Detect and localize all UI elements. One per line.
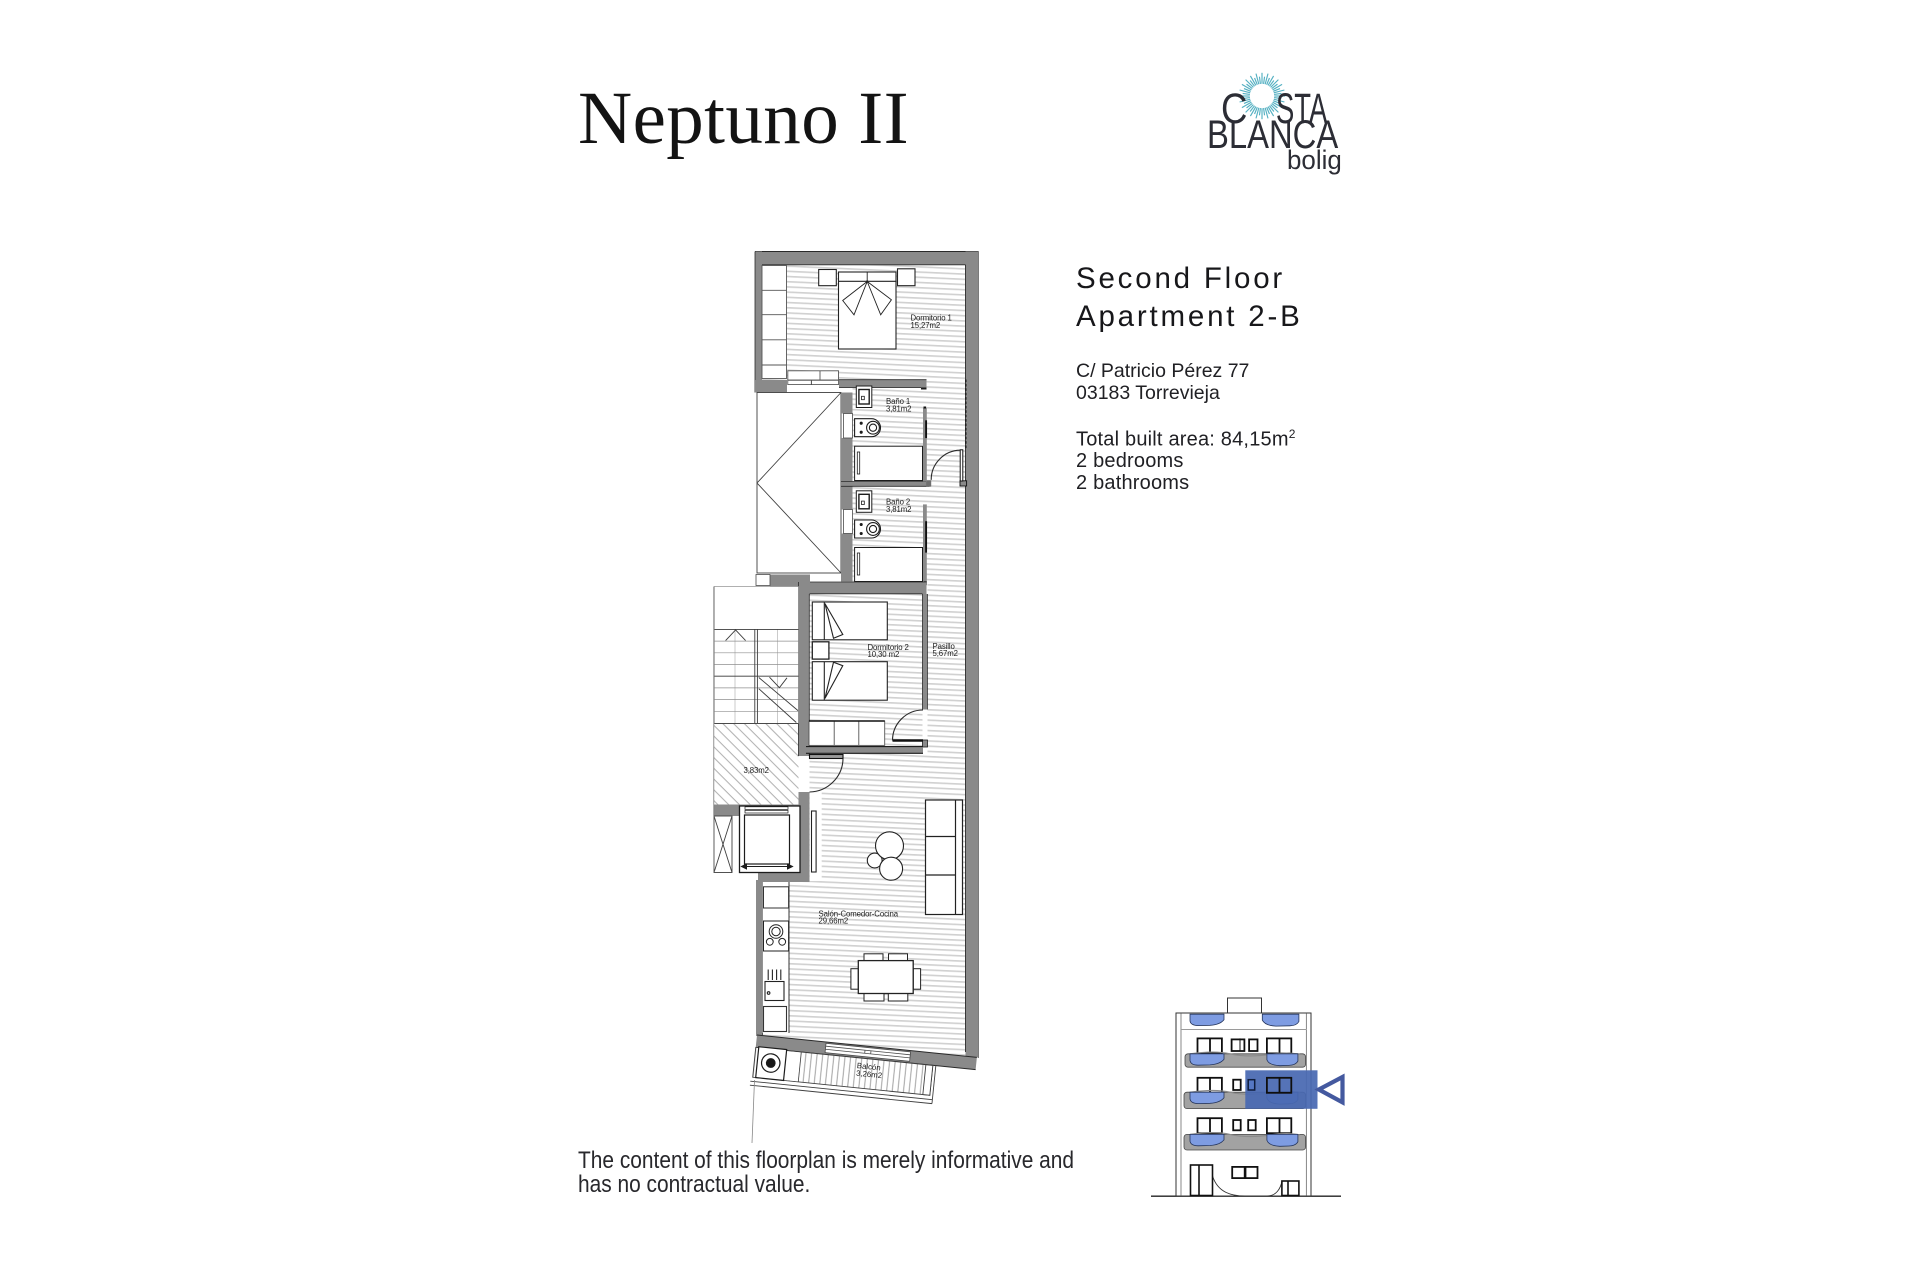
svg-text:3,81m2: 3,81m2 <box>886 405 911 414</box>
svg-text:29,66m2: 29,66m2 <box>819 917 849 926</box>
svg-text:15,27m2: 15,27m2 <box>911 321 941 330</box>
svg-text:3,83m2: 3,83m2 <box>744 766 769 775</box>
svg-text:3,81m2: 3,81m2 <box>886 505 911 514</box>
svg-text:10,30 m2: 10,30 m2 <box>868 650 900 659</box>
svg-text:5,67m2: 5,67m2 <box>933 649 958 658</box>
